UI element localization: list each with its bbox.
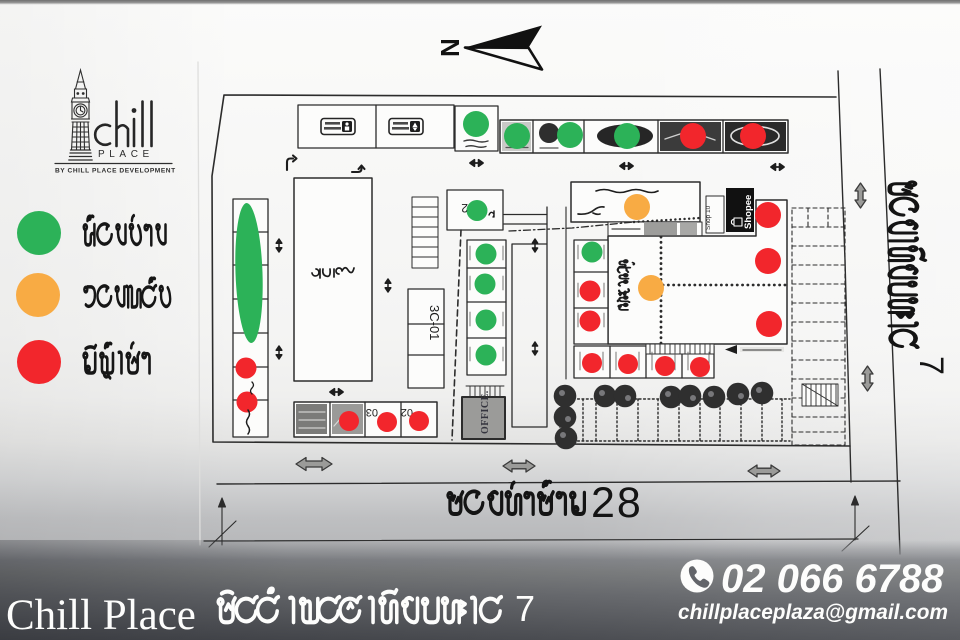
svg-text:PLACE: PLACE xyxy=(98,149,154,160)
svg-text:BY CHILL PLACE DEVELOPMENT: BY CHILL PLACE DEVELOPMENT xyxy=(55,168,176,175)
svg-text:OFFICE.: OFFICE. xyxy=(480,390,491,434)
svg-text:28: 28 xyxy=(591,479,643,527)
svg-text:7: 7 xyxy=(515,588,535,629)
svg-text:Shop 10: Shop 10 xyxy=(705,205,712,230)
svg-text:chillplaceplaza@gmail.com: chillplaceplaza@gmail.com xyxy=(678,601,948,624)
svg-text:N: N xyxy=(435,38,465,57)
svg-text:Chill Place: Chill Place xyxy=(6,592,196,639)
svg-text:3C-01: 3C-01 xyxy=(427,305,442,340)
svg-text:2: 2 xyxy=(461,201,468,215)
svg-text:03: 03 xyxy=(366,406,378,418)
svg-text:Shopee: Shopee xyxy=(743,195,754,229)
svg-text:7: 7 xyxy=(912,356,950,375)
svg-text:02 066 6788: 02 066 6788 xyxy=(721,557,944,601)
